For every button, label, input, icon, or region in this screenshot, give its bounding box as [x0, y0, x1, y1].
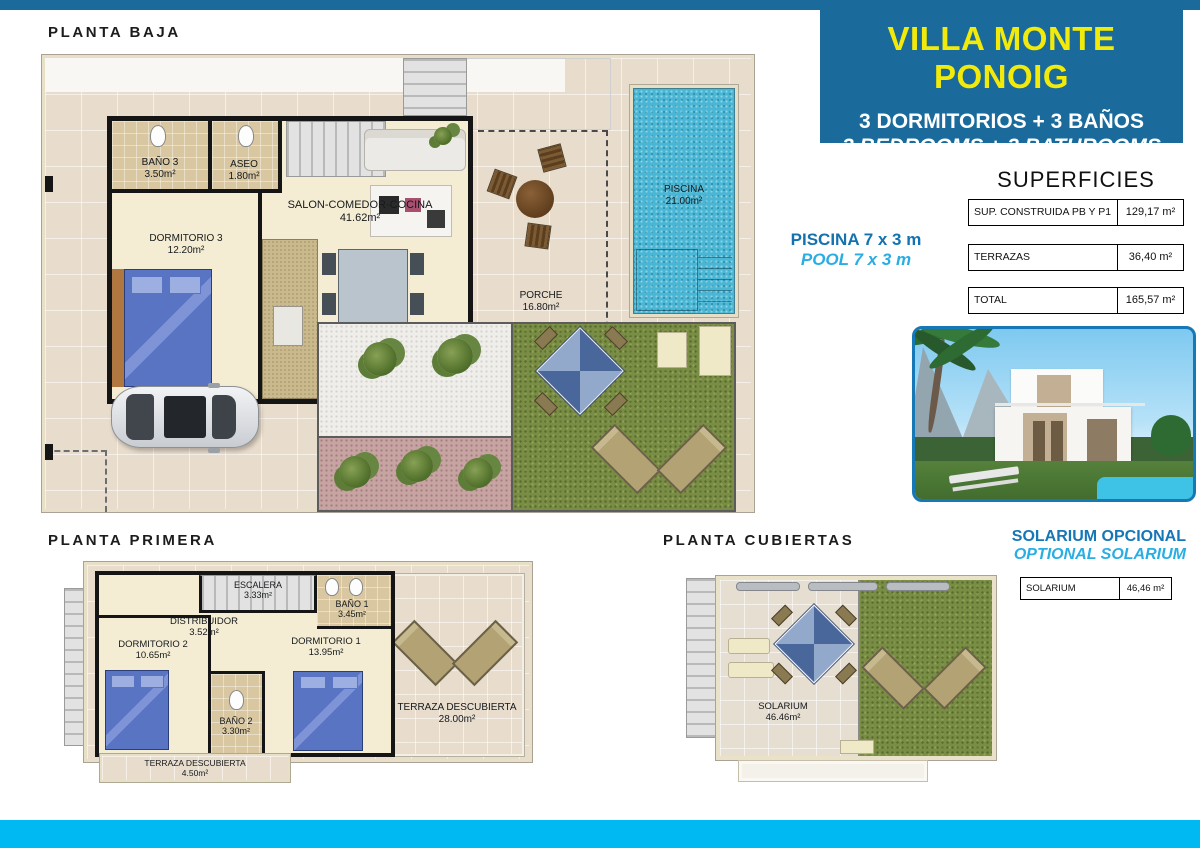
room-escalera: ESCALERA 3.33m²	[199, 575, 317, 613]
car-mirror	[208, 448, 220, 453]
stairs-icon	[64, 588, 86, 746]
bench-icon	[728, 662, 774, 678]
page-title: VILLA MONTE PONOIG	[820, 20, 1183, 96]
pool-area: PISCINA 21.00m²	[633, 88, 735, 314]
room-label-terraza-small: TERRAZA DESCUBIERTA 4.50m²	[102, 756, 288, 779]
room-name: PISCINA	[634, 184, 734, 196]
lounger-icon	[452, 620, 518, 686]
railing	[995, 403, 1145, 406]
car-mirror	[208, 383, 220, 388]
room-area: 12.20m²	[116, 245, 256, 257]
primera-plot: TERRAZA DESCUBIERTA 28.00m² ESCALERA 3.3…	[84, 562, 532, 762]
toilet-icon	[349, 578, 363, 596]
car-rear-window	[126, 394, 154, 440]
room-dormitorio1: DORMITORIO 1 13.95m²	[265, 629, 391, 753]
tree	[1151, 415, 1191, 455]
room-label-solarium: SOLARIUM 46.46m²	[728, 702, 838, 724]
pillow-icon	[140, 675, 164, 688]
door	[1087, 419, 1117, 467]
superficies-row: TERRAZAS 36,40 m²	[968, 244, 1184, 271]
pad-icon	[657, 332, 687, 368]
planta-baja-title: PLANTA BAJA	[48, 24, 181, 41]
solarium-table-row: SOLARIUM 46,46 m²	[1020, 577, 1172, 600]
toilet-icon	[325, 578, 339, 596]
room-area: 10.65m²	[99, 651, 207, 662]
room-name: SALON-COMEDOR-COCINA	[242, 199, 478, 212]
wall-post	[45, 176, 53, 192]
chair-icon	[534, 392, 558, 416]
lawn-area	[513, 322, 736, 512]
bench-icon	[728, 638, 770, 654]
room-label-salon: SALON-COMEDOR-COCINA 41.62m²	[242, 199, 478, 224]
lower-roof-outline	[738, 760, 928, 782]
plant-icon	[401, 450, 433, 482]
room-dormitorio3: DORMITORIO 3 12.20m²	[112, 193, 262, 399]
plant-icon	[434, 127, 452, 145]
planta-primera-title: PLANTA PRIMERA	[48, 532, 217, 549]
room-area: 28.00m²	[391, 714, 523, 726]
planta-cubiertas-plan: SOLARIUM 46.46m²	[680, 570, 1002, 784]
terrace-small-area: TERRAZA DESCUBIERTA 4.50m²	[100, 754, 290, 782]
room-name: BAÑO 3	[112, 157, 208, 169]
bed-icon	[124, 269, 212, 387]
toilet-icon	[238, 125, 254, 147]
plant-icon	[437, 338, 473, 374]
room-label-escalera: ESCALERA 3.33m²	[202, 580, 314, 601]
chair-icon	[487, 169, 518, 200]
chair-icon	[410, 293, 424, 315]
header-subtitle-en: 3 BEDROOMS + 3 BATHROOMS	[820, 135, 1183, 159]
roof-lawn	[858, 580, 992, 756]
superficies-value: 165,57 m²	[1117, 288, 1183, 313]
planta-baja-plan: PISCINA 21.00m² BAÑO 3 3.50m² ASEO	[42, 55, 754, 512]
pad-icon	[699, 326, 731, 376]
room-dormitorio2: DORMITORIO 2 10.65m²	[99, 615, 211, 753]
solar-panel-icon	[736, 582, 800, 591]
pool-steps-outline	[636, 249, 698, 311]
stairs-icon	[686, 578, 716, 738]
pillow-icon	[332, 676, 358, 689]
terrace-area: TERRAZA DESCUBIERTA 28.00m²	[389, 573, 525, 757]
chair-icon	[771, 605, 793, 627]
solarium-note-en: OPTIONAL SOLARIUM	[1004, 546, 1186, 564]
superficies-label: SUP. CONSTRUIDA PB Y P1	[969, 200, 1117, 225]
sink-icon	[273, 306, 303, 346]
header-box: VILLA MONTE PONOIG 3 DORMITORIOS + 3 BAÑ…	[820, 0, 1183, 143]
lounger-icon	[861, 646, 925, 710]
plant-icon	[363, 342, 397, 376]
pillow-icon	[169, 276, 201, 294]
planta-cubiertas-title: PLANTA CUBIERTAS	[663, 532, 854, 549]
planta-primera-plan: TERRAZA DESCUBIERTA 28.00m² ESCALERA 3.3…	[64, 560, 534, 784]
room-bano1: BAÑO 1 3.45m²	[317, 575, 391, 629]
chair-icon	[604, 392, 628, 416]
bed-icon	[293, 671, 363, 751]
superficies-label: TOTAL	[969, 288, 1117, 313]
room-area: 3.50m²	[112, 169, 208, 181]
chair-icon	[835, 663, 857, 685]
solarium-note: SOLARIUM OPCIONAL OPTIONAL SOLARIUM	[1004, 528, 1186, 564]
car-sunroof	[164, 396, 206, 438]
solarium-table-value: 46,46 m²	[1119, 578, 1171, 599]
room-area: 46.46m²	[728, 713, 838, 724]
room-area: 3.30m²	[211, 726, 261, 736]
solarium-note-es: SOLARIUM OPCIONAL	[1004, 528, 1186, 546]
superficies-value: 36,40 m²	[1117, 245, 1183, 270]
gravel-garden-pink	[317, 438, 513, 512]
room-label-dormitorio1: DORMITORIO 1 13.95m²	[265, 637, 387, 659]
pillow-icon	[111, 675, 135, 688]
room-area: 21.00m²	[634, 196, 734, 208]
roof-notch	[840, 740, 874, 754]
lounger-icon	[591, 424, 662, 495]
room-area: 3.33m²	[202, 590, 314, 600]
gravel-garden-white	[317, 322, 513, 438]
car-windshield	[212, 395, 236, 439]
room-name: DORMITORIO 3	[116, 233, 256, 245]
room-aseo: ASEO 1.80m²	[212, 121, 282, 193]
chair-icon	[604, 326, 628, 350]
pool-note: PISCINA 7 x 3 m POOL 7 x 3 m	[772, 230, 940, 270]
toilet-icon	[229, 690, 244, 710]
wall-post	[45, 444, 53, 460]
pillow-icon	[300, 676, 326, 689]
patio-table-icon	[516, 180, 554, 218]
house-first-floor: ESCALERA 3.33m² BAÑO 1 3.45m² DISTRIBUID…	[95, 571, 395, 757]
superficies-title: SUPERFICIES	[968, 167, 1184, 193]
room-label-dormitorio3: DORMITORIO 3 12.20m²	[116, 233, 256, 256]
room-name: ASEO	[212, 159, 276, 171]
pool-foreground	[1097, 477, 1196, 502]
roof-outline	[465, 58, 611, 130]
villa-photo	[912, 326, 1196, 502]
room-area: 1.80m²	[212, 171, 276, 183]
room-name: ESCALERA	[202, 580, 314, 590]
chair-icon	[534, 326, 558, 350]
car-icon	[111, 386, 259, 448]
room-area: 41.62m²	[242, 212, 478, 225]
chair-icon	[410, 253, 424, 275]
room-label-porche: PORCHE 16.80m²	[478, 290, 604, 313]
chair-icon	[322, 253, 336, 275]
superficies-row: SUP. CONSTRUIDA PB Y P1 129,17 m²	[968, 199, 1184, 226]
stairs-icon	[403, 58, 467, 116]
roof-terrace: SOLARIUM 46.46m²	[716, 576, 996, 760]
lounger-icon	[392, 620, 458, 686]
header-subtitle-es: 3 DORMITORIOS + 3 BAÑOS	[820, 110, 1183, 134]
room-area: 3.45m²	[317, 609, 387, 619]
room-label-bano3: BAÑO 3 3.50m²	[112, 157, 208, 180]
lounger-icon	[657, 424, 728, 495]
chair-icon	[771, 663, 793, 685]
solar-panel-icon	[808, 582, 878, 591]
pillow-icon	[131, 276, 163, 294]
chair-icon	[524, 222, 551, 249]
porch-area: PORCHE 16.80m²	[478, 130, 608, 348]
solar-panel-icon	[886, 582, 950, 591]
room-area: 4.50m²	[102, 769, 288, 779]
chair-icon	[322, 293, 336, 315]
gate-outline	[45, 450, 107, 512]
kitchen-island-icon	[262, 239, 318, 399]
solarium-table-label: SOLARIUM	[1021, 578, 1119, 599]
brochure-page: VILLA MONTE PONOIG 3 DORMITORIOS + 3 BAÑ…	[0, 0, 1200, 848]
villa-lower-floor	[995, 407, 1131, 469]
pool-steps-icon	[698, 257, 732, 311]
room-label-piscina: PISCINA 21.00m²	[634, 184, 734, 207]
bed-icon	[105, 670, 169, 750]
toilet-icon	[150, 125, 166, 147]
room-name: BAÑO 1	[317, 599, 387, 609]
plant-icon	[463, 458, 493, 488]
room-label-dormitorio2: DORMITORIO 2 10.65m²	[99, 640, 207, 662]
room-label-aseo: ASEO 1.80m²	[212, 159, 276, 182]
room-name: TERRAZA DESCUBIERTA	[391, 702, 523, 714]
bottom-accent-bar	[0, 820, 1200, 848]
room-bano2: BAÑO 2 3.30m²	[211, 671, 265, 753]
pool-note-es: PISCINA 7 x 3 m	[772, 230, 940, 250]
pool-note-en: POOL 7 x 3 m	[772, 250, 940, 270]
room-label-bano2: BAÑO 2 3.30m²	[211, 716, 261, 737]
superficies-label: TERRAZAS	[969, 245, 1117, 270]
room-area: 13.95m²	[265, 648, 387, 659]
room-name: BAÑO 2	[211, 716, 261, 726]
superficies-value: 129,17 m²	[1117, 200, 1183, 225]
room-label-bano1: BAÑO 1 3.45m²	[317, 599, 387, 620]
room-label-terraza: TERRAZA DESCUBIERTA 28.00m²	[391, 702, 523, 725]
chair-icon	[537, 143, 566, 172]
plant-icon	[339, 456, 371, 488]
lounger-icon	[923, 646, 987, 710]
superficies-row: TOTAL 165,57 m²	[968, 287, 1184, 314]
headboard-icon	[112, 269, 124, 387]
chair-icon	[835, 605, 857, 627]
room-bano3: BAÑO 3 3.50m²	[112, 121, 212, 193]
room-area: 16.80m²	[478, 302, 604, 314]
room-name: PORCHE	[478, 290, 604, 302]
